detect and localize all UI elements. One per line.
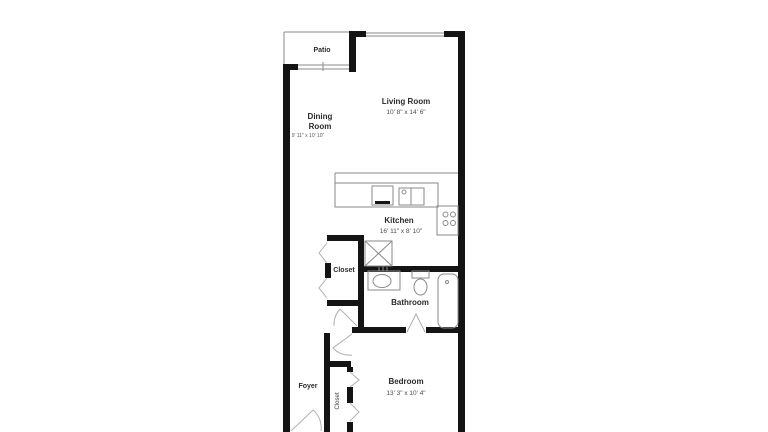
wall-patio-stub [283,64,298,70]
wall-bedroom-closet-stub-bottom [347,422,353,432]
wall-top-segment-a [349,31,366,37]
living-room-label: Living Room [382,97,430,106]
dining-room-dimensions: 9' 11" x 10' 10" [292,133,325,139]
stove-icon [437,206,458,235]
stove-burner-2 [451,212,456,217]
bedroom-closet-label: Closet [335,392,341,409]
living-room-dimensions: 10' 8" x 14' 6" [386,109,426,116]
bathroom-fixtures [368,266,458,328]
wall-foyer-right [324,333,330,432]
bedroom-label: Bedroom [388,377,423,386]
bathroom-label: Bathroom [391,298,429,307]
wall-right-exterior [458,31,465,432]
toilet-tank [412,271,429,278]
bedroom-closet-bifold-bottom [350,403,359,421]
hall-end-door-swing [334,309,357,326]
patio-sliding-door [298,62,349,71]
hall-closet-bifold-door-top [319,243,327,263]
wall-closet-bathroom-left [358,235,364,333]
wall-bedroom-top-a [352,327,406,333]
walls [283,31,465,432]
dining-room-label-line2: Room [309,122,332,131]
bedroom-door-swing [333,334,352,355]
wall-hall-closet-left-post [325,263,331,278]
toilet-bowl-icon [414,279,427,295]
hall-closet-label: Closet [333,267,355,274]
bedroom-closet-bifold-top [350,372,359,387]
stove-burner-4 [451,221,456,226]
dishwasher-handle [375,201,390,204]
wall-patio-right [349,31,356,72]
kitchen-faucet-icon [402,190,406,194]
wall-left-exterior [283,64,290,432]
bathtub-drain [446,281,449,284]
floor-plan-page: Patio Living Room 10' 8" x 14' 6" Dining… [0,0,768,432]
stove-burner-3 [443,221,448,226]
hall-closet-bifold-door-bottom [319,278,327,298]
room-labels: Patio Living Room 10' 8" x 14' 6" Dining… [292,47,431,410]
foyer-label: Foyer [298,383,317,390]
wall-bedroom-closet-top [330,361,351,367]
patio-label: Patio [313,47,330,54]
entry-door-swing [291,410,321,431]
bathroom-door-swing [407,314,425,332]
kitchen-label: Kitchen [384,216,413,225]
kitchen-dimensions: 16' 11" x 8' 10" [380,228,423,235]
bathroom-sink-icon [373,275,391,288]
dining-room-label-line1: Dining [308,112,333,121]
bedroom-dimensions: 13' 3" x 10' 4" [386,390,426,397]
wall-bedroom-closet-stub-top [347,367,353,372]
floor-plan-svg: Patio Living Room 10' 8" x 14' 6" Dining… [0,0,768,432]
wall-bedroom-closet-stub-mid [347,387,353,403]
stove-burner-1 [443,212,448,217]
living-room-window [366,33,444,36]
